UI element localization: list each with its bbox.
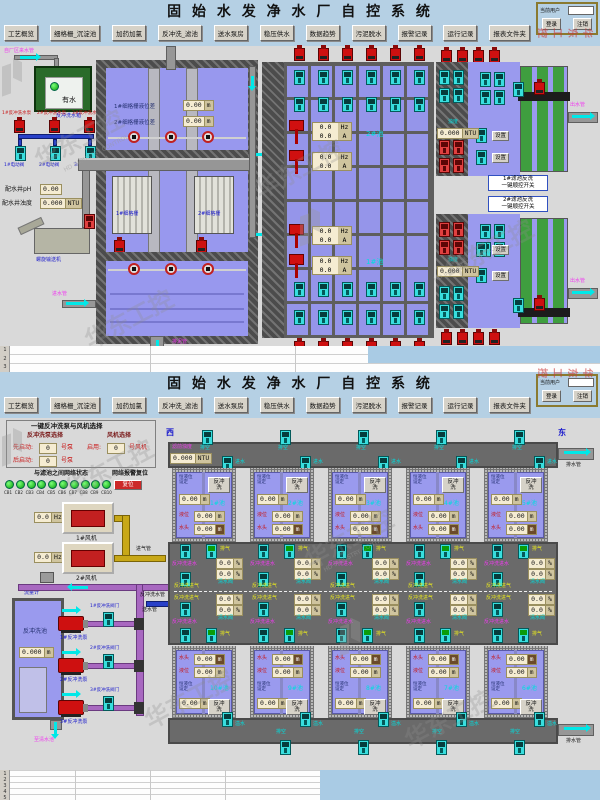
network-led: CB10 — [101, 480, 112, 497]
electric-valve[interactable]: 1#电动阀 — [2, 146, 36, 172]
backwash-pump-icon[interactable] — [58, 658, 84, 673]
cell-number: 6#池 — [522, 686, 537, 693]
login-button[interactable]: 登录 — [542, 390, 561, 402]
empty-valve-label: 排空 — [432, 730, 442, 736]
const-level-display: 0.00m — [413, 698, 444, 709]
grid-valve-icon[interactable] — [414, 97, 425, 112]
flow-meter[interactable] — [40, 572, 54, 583]
grid-valve-icon[interactable] — [342, 97, 353, 112]
valve-icon[interactable] — [50, 146, 61, 161]
red-valve-icon[interactable] — [453, 240, 464, 255]
empty-valve-icon[interactable] — [202, 430, 213, 445]
nav-run-record[interactable]: 运行记录 — [443, 397, 477, 413]
mixer-icon[interactable] — [288, 150, 304, 176]
grid-valve-icon[interactable] — [294, 282, 305, 297]
flow-arrow — [62, 693, 76, 696]
grid-valve-icon[interactable] — [366, 310, 377, 325]
red-valve-icon[interactable] — [439, 140, 450, 155]
head-label: 水头 — [413, 526, 423, 532]
corridor-valve-icon[interactable] — [336, 602, 347, 617]
led-icon — [37, 480, 46, 489]
level-label: 液位 — [179, 669, 189, 675]
cell-backwash-button[interactable]: 反冲洗 — [520, 477, 542, 493]
fine-screen-unit[interactable]: 2#细格栅 — [194, 176, 234, 254]
overflow-valve-icon[interactable] — [300, 712, 311, 727]
vent-label: 排气 — [454, 632, 464, 638]
empty-valve-label: 排空 — [434, 446, 444, 452]
head-display: 0.00m — [350, 654, 381, 665]
screw-conveyor[interactable] — [34, 228, 90, 254]
bw-water-label: 反冲洗进水 — [250, 562, 275, 568]
pipe-drop — [88, 139, 92, 146]
flow-arrow — [20, 56, 36, 59]
blower-2[interactable] — [62, 542, 114, 574]
grid-valve-icon[interactable] — [342, 70, 353, 85]
filter-cell: 水头 0.00m 液位 0.00m 恒液位设定 8#池 0.00m 反冲洗 — [328, 646, 392, 718]
current-user-input[interactable] — [568, 6, 594, 15]
valve-pct-display: 0.0% — [294, 558, 321, 569]
backwash-pump-icon[interactable] — [58, 616, 84, 631]
corridor-valve-icon[interactable] — [258, 628, 269, 643]
filter1-wash-pump-red[interactable] — [534, 82, 545, 95]
head-display: 0.00m — [428, 654, 459, 665]
grid-valve-icon[interactable] — [342, 282, 353, 297]
grid-valve-icon[interactable] — [366, 70, 377, 85]
level-label: 液位 — [179, 513, 189, 519]
vent-valve-icon[interactable] — [284, 628, 295, 643]
empty-valve-icon[interactable] — [280, 740, 291, 755]
fan2-hz-display: 0.0Hz — [34, 552, 65, 563]
red-valve-icon[interactable] — [453, 222, 464, 237]
electric-valve[interactable]: 2#电动阀 — [37, 146, 71, 172]
circled-valve-icon[interactable] — [202, 131, 214, 143]
pump-select-label: 反冲洗泵选择 — [27, 433, 63, 440]
filter2-wash-pump-red[interactable] — [534, 298, 545, 311]
nav-dosing-chlorination[interactable]: 加药加氯 — [112, 397, 146, 413]
backwash-pump-label: 3#反冲洗泵 — [60, 720, 87, 726]
filter2-wash-pump[interactable] — [513, 298, 524, 313]
cell-number: 9#池 — [288, 686, 303, 693]
backwash-pipe-label: 反冲洗水管 — [140, 593, 165, 599]
corridor-valve-icon[interactable] — [492, 602, 503, 617]
overflow-valve-icon[interactable] — [222, 712, 233, 727]
hz-amp-display: 0.0Hz 0.0A — [312, 152, 352, 171]
bw-air-label: 反冲洗进气 — [330, 584, 355, 590]
cell-backwash-button[interactable]: 反冲洗 — [286, 477, 308, 493]
vent-valve-icon[interactable] — [518, 628, 529, 643]
valve-icon[interactable] — [494, 72, 505, 87]
bw-water-label: 反冲洗进水 — [406, 620, 431, 626]
backwash-pump-unit: 2#反冲洗阀门 2#反冲洗泵 — [58, 646, 150, 688]
const-level-display: 0.00m — [491, 698, 522, 709]
grid-valve-icon[interactable] — [366, 282, 377, 297]
empty-valve-unit: 排空 — [432, 430, 454, 456]
corridor-valve-icon[interactable] — [336, 544, 347, 559]
led-icon — [91, 480, 100, 489]
nav-data-trend[interactable]: 数据趋势 — [306, 25, 340, 41]
filter2-pump-icon[interactable] — [476, 242, 487, 257]
nav-fine-screen-sedimentation[interactable]: 细格栅_沉淀池 — [50, 397, 100, 413]
empty-valve-icon[interactable] — [514, 430, 525, 445]
head-label: 水头 — [491, 526, 501, 532]
tank-ridge — [110, 293, 244, 295]
valve-icon[interactable] — [439, 286, 450, 301]
grid-pump-icon[interactable] — [318, 48, 329, 61]
corridor-valve-icon[interactable] — [180, 602, 191, 617]
vent-valve-icon[interactable] — [206, 628, 217, 643]
cell-number: 3#池 — [366, 501, 381, 508]
corridor-valve-icon[interactable] — [414, 602, 425, 617]
filter1-teal-valves — [439, 70, 467, 103]
overflow-valve-icon[interactable] — [378, 712, 389, 727]
grid-pump-icon[interactable] — [366, 48, 377, 61]
cell-number: 5#池 — [522, 501, 537, 508]
grid-valve-icon[interactable] — [390, 282, 401, 297]
flow-arrow — [564, 727, 586, 730]
blower-1[interactable] — [62, 502, 114, 534]
cell-backwash-button[interactable]: 反冲洗 — [364, 477, 386, 493]
corridor-valve-icon[interactable] — [414, 628, 425, 643]
valve-icon[interactable] — [480, 224, 491, 239]
red-valve-icon[interactable] — [453, 158, 464, 173]
grid-valve-icon[interactable] — [294, 97, 305, 112]
nav-process-overview[interactable]: 工艺概览 — [4, 25, 38, 41]
filter1-inner-valves — [480, 72, 508, 105]
pipe-drop — [53, 139, 57, 146]
filter2-bottom-pumps — [438, 332, 502, 345]
cell-number: 8#池 — [366, 686, 381, 693]
corridor-valve-icon[interactable] — [492, 628, 503, 643]
cell-number: 10#池 — [210, 686, 229, 693]
grid-valve-icon[interactable] — [366, 97, 377, 112]
grid-valve-icon[interactable] — [390, 70, 401, 85]
empty-valve-icon[interactable] — [436, 740, 447, 755]
vent-valve-icon[interactable] — [440, 544, 451, 559]
backwash-pump-icon[interactable] — [58, 700, 84, 715]
valve-icon[interactable] — [480, 72, 491, 87]
const-level-display: 0.00m — [179, 494, 210, 505]
valve-pct-display: 0.0% — [372, 594, 399, 605]
valve-icon[interactable] — [15, 146, 26, 161]
backwash-water-tank[interactable]: 有水 — [34, 66, 92, 112]
bw-water-label: 反冲洗进水 — [172, 562, 197, 568]
clean-valve-label: 清水阀 — [296, 580, 311, 586]
clean-valve-label: 清水阀 — [452, 580, 467, 586]
blower-motor — [71, 550, 105, 567]
corridor-centerline — [174, 591, 552, 592]
mixer-unit[interactable]: 0.0Hz 0.0A — [288, 254, 358, 284]
valve-pct-display: 0.0% — [216, 605, 243, 616]
cb-label: CB4 — [36, 490, 44, 495]
valve-pct-display: 0.0% — [216, 594, 243, 605]
east-label: 东 — [558, 428, 566, 437]
grid-valve-icon[interactable] — [318, 282, 329, 297]
filter-cell: 水头 0.00m 液位 0.00m 恒液位设定 7#池 0.00m 反冲洗 — [406, 646, 470, 718]
red-valve-icon[interactable] — [453, 140, 464, 155]
flow-arrow — [62, 651, 76, 654]
vent-valve-icon[interactable] — [284, 544, 295, 559]
pipe-drop — [18, 139, 22, 146]
red-valve-icon[interactable] — [439, 222, 450, 237]
overflow-valve-icon[interactable] — [534, 712, 545, 727]
pump-icon[interactable] — [489, 332, 500, 345]
corridor-valve-icon[interactable] — [414, 544, 425, 559]
filter-cell: 恒液位设定 反冲洗 0.00m 5#池 液位 0.00m 水头 0.00m — [484, 468, 548, 542]
mixer-unit[interactable]: 0.0Hz 0.0A — [288, 224, 358, 254]
empty-valve-icon[interactable] — [358, 740, 369, 755]
last-pump-display[interactable]: 0 — [39, 456, 57, 467]
pool2-label: 2#池 — [366, 130, 383, 138]
valve-icon[interactable] — [494, 224, 505, 239]
overflow-valve-icon[interactable] — [456, 712, 467, 727]
valve-icon[interactable] — [453, 304, 464, 319]
backwash-valve-icon[interactable] — [103, 696, 114, 711]
grid-valve-icon[interactable] — [294, 310, 305, 325]
bw-water-label: 反冲洗进水 — [484, 620, 509, 626]
corridor-valve-icon[interactable] — [336, 628, 347, 643]
logout-button[interactable]: 注销 — [573, 390, 592, 402]
corridor-valve-icon[interactable] — [180, 544, 191, 559]
well-turbidity-label: 配水井浊度 — [2, 201, 32, 208]
pump-icon[interactable] — [473, 332, 484, 345]
grid-valve-icon[interactable] — [390, 97, 401, 112]
pump-icon[interactable] — [84, 120, 95, 133]
nav-fine-screen-sedimentation[interactable]: 细格栅_沉淀池 — [50, 25, 100, 41]
head-display: 0.00m — [428, 524, 459, 535]
filter1-settings-button[interactable]: 设置 — [492, 131, 509, 141]
overflow-valve-unit: 溢水 — [222, 712, 252, 732]
sheet-gridline — [225, 770, 226, 800]
corridor-valve-icon[interactable] — [258, 544, 269, 559]
filter-cell: 水头 0.00m 液位 0.00m 恒液位设定 10#池 0.00m 反冲洗 — [172, 646, 236, 718]
circled-valve-icon[interactable] — [128, 263, 140, 275]
empty-valve-unit: 排空 — [432, 730, 454, 756]
level-display: 0.00m — [428, 667, 459, 678]
empty-valve-icon[interactable] — [436, 430, 447, 445]
cb-label: CB1 — [4, 490, 12, 495]
grid-valve-icon[interactable] — [414, 310, 425, 325]
network-led: CB5 — [47, 480, 58, 497]
screw-valve-icon[interactable] — [84, 214, 95, 229]
grid-valve-icon[interactable] — [318, 97, 329, 112]
valve-icon[interactable] — [439, 70, 450, 85]
mixer-icon[interactable] — [288, 224, 304, 250]
filter1-settings-button[interactable]: 设置 — [492, 153, 509, 163]
grid-valve-icon[interactable] — [414, 70, 425, 85]
circled-valve-icon[interactable] — [128, 131, 140, 143]
empty-valve-unit: 排空 — [510, 730, 532, 756]
current-user-input[interactable] — [568, 378, 594, 387]
nav-water-pump-house[interactable]: 送水泵房 — [214, 25, 248, 41]
valve-pct-display: 0.0% — [216, 569, 243, 580]
nav-backwash-filter[interactable]: 反冲洗_滤池 — [158, 25, 202, 41]
bw-air-label: 反冲洗进气 — [408, 584, 433, 590]
bw-water-label: 反冲洗进水 — [250, 620, 275, 626]
fine-screen-machine[interactable] — [112, 176, 152, 234]
const-level-label: 恒液位设定 — [179, 475, 193, 486]
filter2-settings-button[interactable]: 设置 — [492, 271, 509, 281]
led-icon — [70, 480, 79, 489]
nav-process-overview[interactable]: 工艺概览 — [4, 397, 38, 413]
backwash-valve-icon[interactable] — [103, 612, 114, 627]
grid-valve-icon[interactable] — [390, 310, 401, 325]
overflow-valve-label: 溢水 — [469, 722, 479, 728]
level-label: 液位 — [413, 513, 423, 519]
const-level-display: 0.00m — [335, 698, 366, 709]
valve-pct-display: 0.0% — [294, 605, 321, 616]
grid-valve-icon[interactable] — [414, 282, 425, 297]
grid-valve-icon[interactable] — [318, 310, 329, 325]
head-label: 水头 — [335, 526, 345, 532]
corridor-valve-icon[interactable] — [258, 602, 269, 617]
nav-alarm-record[interactable]: 报警记录 — [398, 397, 432, 413]
mixer-icon[interactable] — [288, 254, 304, 280]
nav-pressure-supply[interactable]: 稳压供水 — [260, 25, 294, 41]
mixer-unit[interactable]: 0.0Hz 0.0A — [288, 120, 358, 150]
cb-label: CB6 — [58, 490, 66, 495]
network-status-title: 与滤池之间网络状态 — [34, 471, 88, 478]
cell-number: 7#池 — [444, 686, 459, 693]
nav-report-folder[interactable]: 报表文件夹 — [489, 397, 530, 413]
network-led: CB3 — [26, 480, 37, 497]
clean-valve-label: 清水阀 — [374, 616, 389, 622]
level-display: 0.00m — [272, 511, 303, 522]
grid-valve-icon[interactable] — [342, 310, 353, 325]
nav-water-pump-house[interactable]: 送水泵房 — [214, 397, 248, 413]
cell-backwash-button[interactable]: 反冲洗 — [208, 477, 230, 493]
valve-pct-display: 0.0% — [528, 594, 555, 605]
valve-pct-display: 0.0% — [372, 605, 399, 616]
plant-inlet-pipe-label: 自厂区来水管 — [4, 49, 34, 55]
first-start-label: 先启动: — [13, 445, 33, 452]
mud-pipe-label: 排泥管 — [172, 340, 187, 346]
enable-label: 启用: — [87, 445, 101, 452]
empty-valve-icon[interactable] — [514, 740, 525, 755]
clean-valve-label: 清水阀 — [218, 580, 233, 586]
vent-valve-icon[interactable] — [362, 544, 373, 559]
backwash-valve-icon[interactable] — [103, 654, 114, 669]
one-key-panel: 一键反冲洗泵与风机选择 反冲洗泵选择 风机选择 先启动: 0 号泵 启用: 0 … — [6, 420, 156, 468]
empty-valve-icon[interactable] — [358, 430, 369, 445]
filter1-seq-control[interactable]: 1#滤池反洗一键顺控开关 — [488, 175, 548, 191]
circled-valve-icon[interactable] — [202, 263, 214, 275]
nav-backwash-filter[interactable]: 反冲洗_滤池 — [158, 397, 202, 413]
nav-data-trend[interactable]: 数据趋势 — [306, 397, 340, 413]
clean-valve-label: 清水阀 — [530, 580, 545, 586]
pump-icon[interactable] — [457, 332, 468, 345]
valve-icon[interactable] — [439, 88, 450, 103]
const-level-label: 恒液位设定 — [179, 682, 193, 693]
tank-top-pipe — [166, 46, 176, 70]
valve-icon[interactable] — [453, 286, 464, 301]
grid-pump-icon[interactable] — [294, 48, 305, 61]
empty-valve-label: 排空 — [278, 446, 288, 452]
corridor-column: 排气 反冲洗进水 0.0% 0.0% 清水阀 反冲洗进气 反冲洗进气 0.0% … — [484, 544, 560, 644]
first-pump-display[interactable]: 0 — [39, 443, 57, 454]
network-led: CB4 — [36, 480, 47, 497]
vent-valve-icon[interactable] — [440, 628, 451, 643]
fine-screen-unit[interactable]: 1#细格栅 — [112, 176, 152, 254]
filter2-seq-control[interactable]: 2#滤池反洗一键顺控开关 — [488, 196, 548, 212]
grid-valve-icon[interactable] — [318, 70, 329, 85]
nav-dosing-chlorination[interactable]: 加药加氯 — [112, 25, 146, 41]
level-display: 0.00m — [428, 511, 459, 522]
grid-pump-icon[interactable] — [390, 48, 401, 61]
filter-cell: 恒液位设定 反冲洗 0.00m 3#池 液位 0.00m 水头 0.00m — [328, 468, 392, 542]
const-level-label: 恒液位设定 — [413, 682, 427, 693]
head-display: 0.00m — [506, 524, 537, 535]
nav-run-record[interactable]: 运行记录 — [443, 25, 477, 41]
nav-pressure-supply[interactable]: 稳压供水 — [260, 397, 294, 413]
sheet-row-number: 5 — [1, 795, 9, 800]
corridor-valve-icon[interactable] — [492, 544, 503, 559]
fan-display[interactable]: 0 — [107, 443, 125, 454]
logout-button[interactable]: 注销 — [573, 18, 592, 30]
pump-icon[interactable] — [49, 120, 60, 133]
network-reset-button[interactable]: 复位 — [114, 480, 142, 490]
fine-screen-machine[interactable] — [194, 176, 234, 234]
cell-backwash-button[interactable]: 反冲洗 — [442, 477, 464, 493]
filter-cell: 恒液位设定 反冲洗 0.00m 4#池 液位 0.00m 水头 0.00m — [406, 468, 470, 542]
cb-label: CB2 — [15, 490, 23, 495]
valve-icon[interactable] — [494, 90, 505, 105]
vent-label: 排气 — [376, 632, 386, 638]
red-valve-icon[interactable] — [439, 240, 450, 255]
pump-icon[interactable] — [14, 120, 25, 133]
level-label: 液位 — [335, 669, 345, 675]
nav-alarm-record[interactable]: 报警记录 — [398, 25, 432, 41]
backwash-pool: 反冲洗池 0.000m — [12, 598, 64, 720]
valve-icon[interactable] — [439, 304, 450, 319]
grid-valve-icon[interactable] — [294, 70, 305, 85]
grid-pump-icon[interactable] — [342, 48, 353, 61]
nav-sludge-dewatering[interactable]: 污泥脱水 — [352, 397, 386, 413]
red-valve-icon[interactable] — [439, 158, 450, 173]
corridor-column: 排气 反冲洗进水 0.0% 0.0% 清水阀 反冲洗进气 反冲洗进气 0.0% … — [406, 544, 482, 644]
nav-report-folder[interactable]: 报表文件夹 — [489, 25, 530, 41]
valve-pct-display: 0.0% — [216, 558, 243, 569]
mixer-icon[interactable] — [288, 120, 304, 146]
valve-icon[interactable] — [480, 90, 491, 105]
valve-icon[interactable] — [453, 88, 464, 103]
corridor-valve-icon[interactable] — [180, 628, 191, 643]
top-drain-label: 排水管 — [566, 463, 581, 469]
login-button[interactable]: 登录 — [542, 18, 561, 30]
pump-icon[interactable] — [441, 332, 452, 345]
circled-valve-icon[interactable] — [165, 131, 177, 143]
circled-valve-row — [116, 263, 226, 275]
valve-icon[interactable] — [453, 70, 464, 85]
vent-valve-icon[interactable] — [362, 628, 373, 643]
vent-valve-icon[interactable] — [518, 544, 529, 559]
filter2-settings-button[interactable]: 设置 — [492, 245, 509, 255]
vent-label: 排气 — [298, 632, 308, 638]
filter1-pump-icon[interactable] — [476, 150, 487, 165]
empty-valve-icon[interactable] — [280, 430, 291, 445]
filter-cell: 水头 0.00m 液位 0.00m 恒液位设定 9#池 0.00m 反冲洗 — [250, 646, 314, 718]
level-display: 0.00m — [350, 667, 381, 678]
overflow-valve-label: 溢水 — [391, 722, 401, 728]
circled-valve-icon[interactable] — [165, 263, 177, 275]
nav-sludge-dewatering[interactable]: 污泥脱水 — [352, 25, 386, 41]
filter1-wash-pump[interactable] — [513, 82, 524, 97]
mixer-unit[interactable]: 0.0Hz 0.0A — [288, 150, 358, 180]
grid-pump-icon[interactable] — [414, 48, 425, 61]
flow-meter-label: 流量计 — [24, 591, 39, 597]
network-led: CB6 — [58, 480, 69, 497]
inflow-valve-label: 进水 — [469, 460, 479, 466]
vent-valve-icon[interactable] — [206, 544, 217, 559]
